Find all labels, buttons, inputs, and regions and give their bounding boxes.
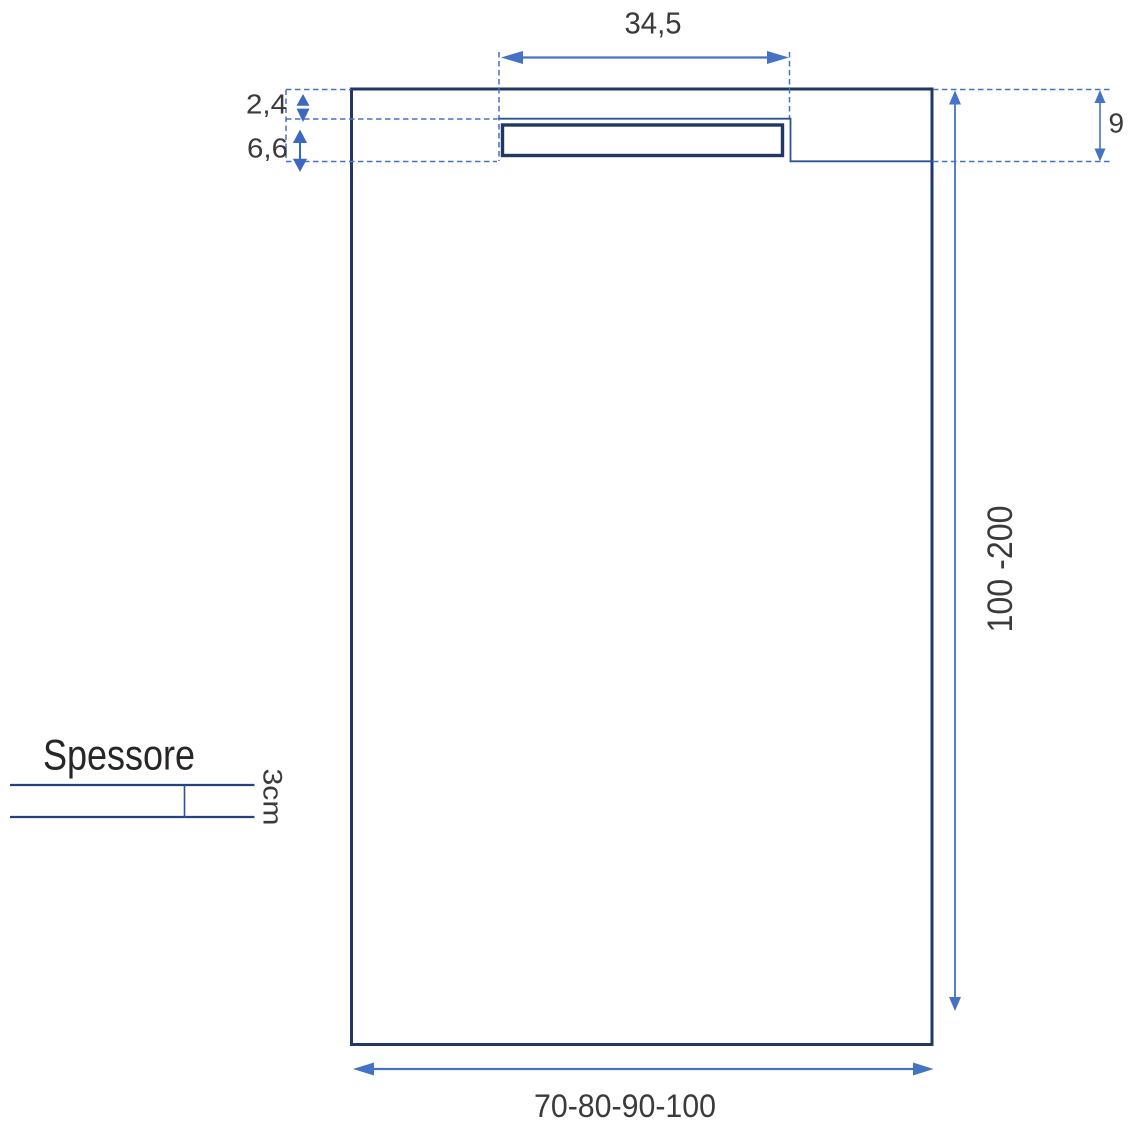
- svg-text:70-80-90-100: 70-80-90-100: [534, 1088, 716, 1124]
- svg-text:100 -200: 100 -200: [981, 506, 1020, 633]
- svg-text:Spessore: Spessore: [43, 732, 195, 780]
- svg-text:2,4: 2,4: [246, 89, 287, 120]
- svg-text:34,5: 34,5: [625, 6, 682, 41]
- svg-text:9: 9: [1109, 108, 1125, 139]
- svg-text:6,6: 6,6: [247, 133, 288, 164]
- svg-text:3cm: 3cm: [258, 769, 288, 826]
